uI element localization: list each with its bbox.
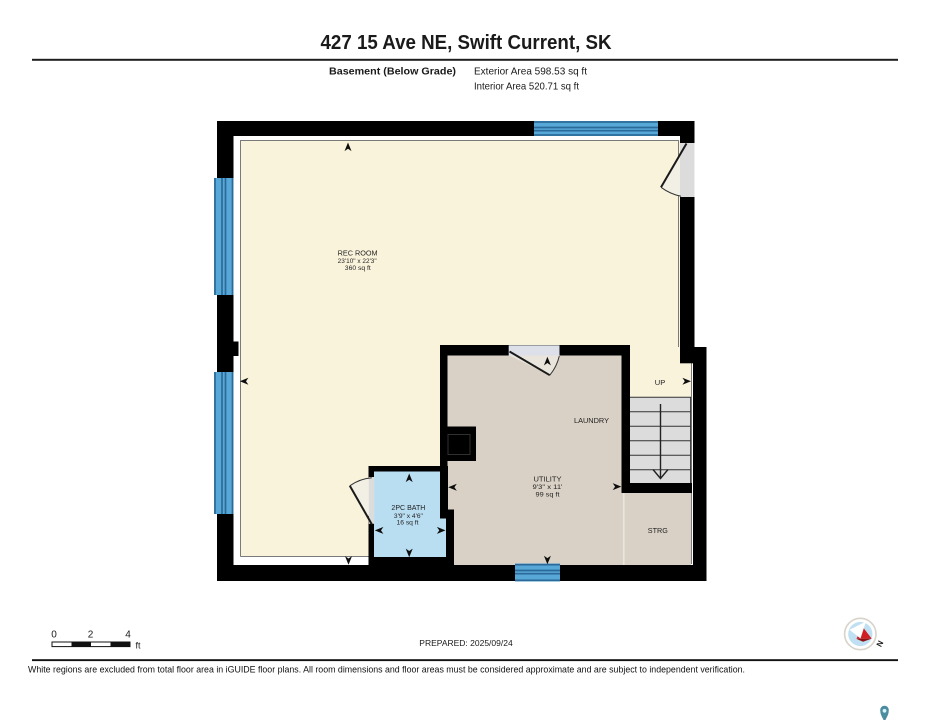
svg-text:Basement (Below Grade): Basement (Below Grade) <box>329 66 456 78</box>
svg-text:LAUNDRY: LAUNDRY <box>574 418 609 425</box>
svg-text:4: 4 <box>125 630 131 641</box>
svg-text:360 sq ft: 360 sq ft <box>345 265 371 272</box>
svg-text:UP: UP <box>655 380 666 387</box>
svg-text:99 sq ft: 99 sq ft <box>536 492 560 499</box>
svg-text:16 sq ft: 16 sq ft <box>397 519 419 526</box>
svg-text:White regions are excluded fro: White regions are excluded from total fl… <box>28 665 745 675</box>
svg-text:2: 2 <box>88 630 94 641</box>
svg-text:ft: ft <box>136 641 142 651</box>
svg-text:Interior Area 520.71 sq ft: Interior Area 520.71 sq ft <box>474 81 579 93</box>
svg-text:0: 0 <box>51 630 57 641</box>
svg-text:2PC BATH: 2PC BATH <box>391 505 425 512</box>
svg-text:UTILITY: UTILITY <box>534 477 562 484</box>
svg-text:427 15 Ave NE, Swift Current,: 427 15 Ave NE, Swift Current, SK <box>321 32 613 54</box>
svg-text:REC ROOM: REC ROOM <box>338 250 378 257</box>
svg-text:9'3" x 11': 9'3" x 11' <box>533 484 563 491</box>
svg-text:STRG: STRG <box>648 528 668 535</box>
svg-text:PREPARED: 2025/09/24: PREPARED: 2025/09/24 <box>419 638 513 648</box>
svg-text:N: N <box>875 639 886 648</box>
svg-text:Exterior Area 598.53 sq ft: Exterior Area 598.53 sq ft <box>474 66 587 78</box>
svg-text:23'10" x 22'3": 23'10" x 22'3" <box>338 258 377 265</box>
